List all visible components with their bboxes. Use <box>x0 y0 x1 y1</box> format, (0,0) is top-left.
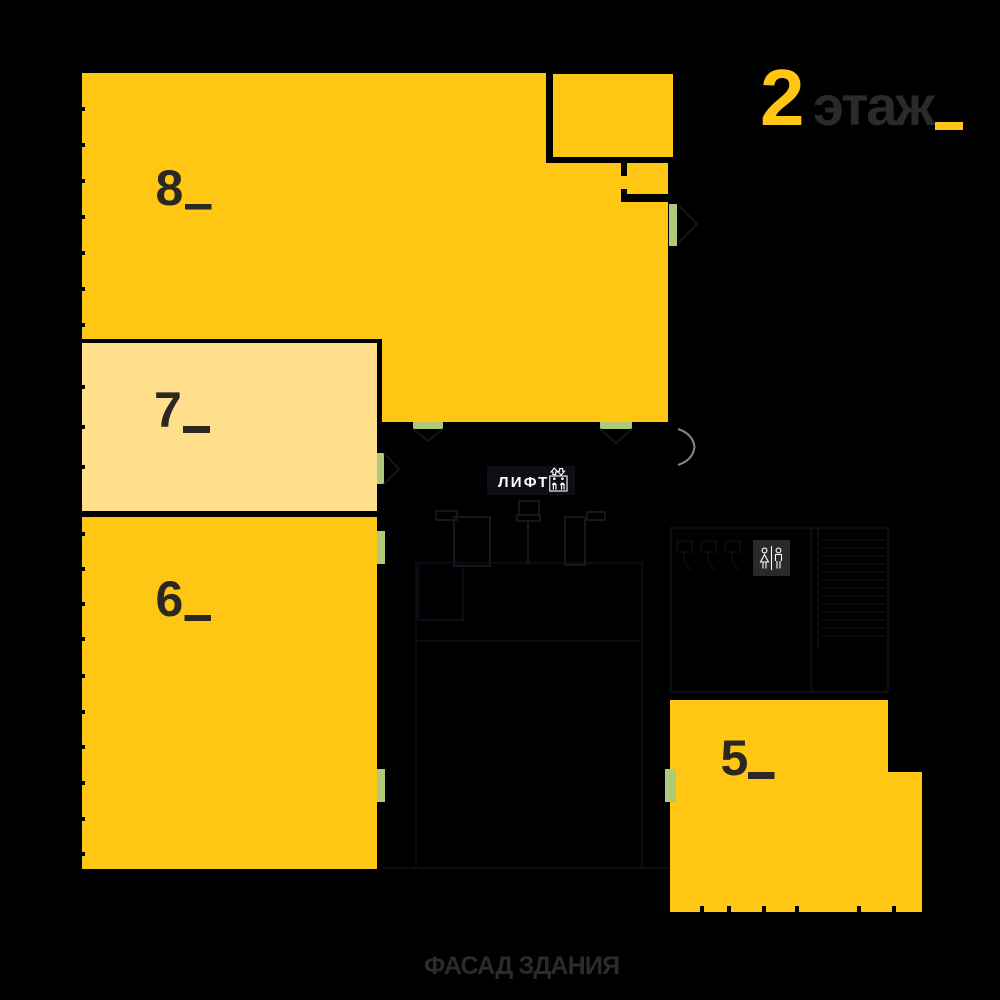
svg-text:5: 5 <box>721 730 749 786</box>
svg-text:этаж: этаж <box>813 74 936 137</box>
svg-text:6: 6 <box>156 571 184 627</box>
svg-text:8: 8 <box>156 160 184 216</box>
svg-text:7: 7 <box>154 382 182 438</box>
svg-text:2: 2 <box>760 53 805 142</box>
svg-text:ФАСАД ЗДАНИЯ: ФАСАД ЗДАНИЯ <box>424 952 619 980</box>
svg-text:ЛИФТ: ЛИФТ <box>498 474 550 491</box>
